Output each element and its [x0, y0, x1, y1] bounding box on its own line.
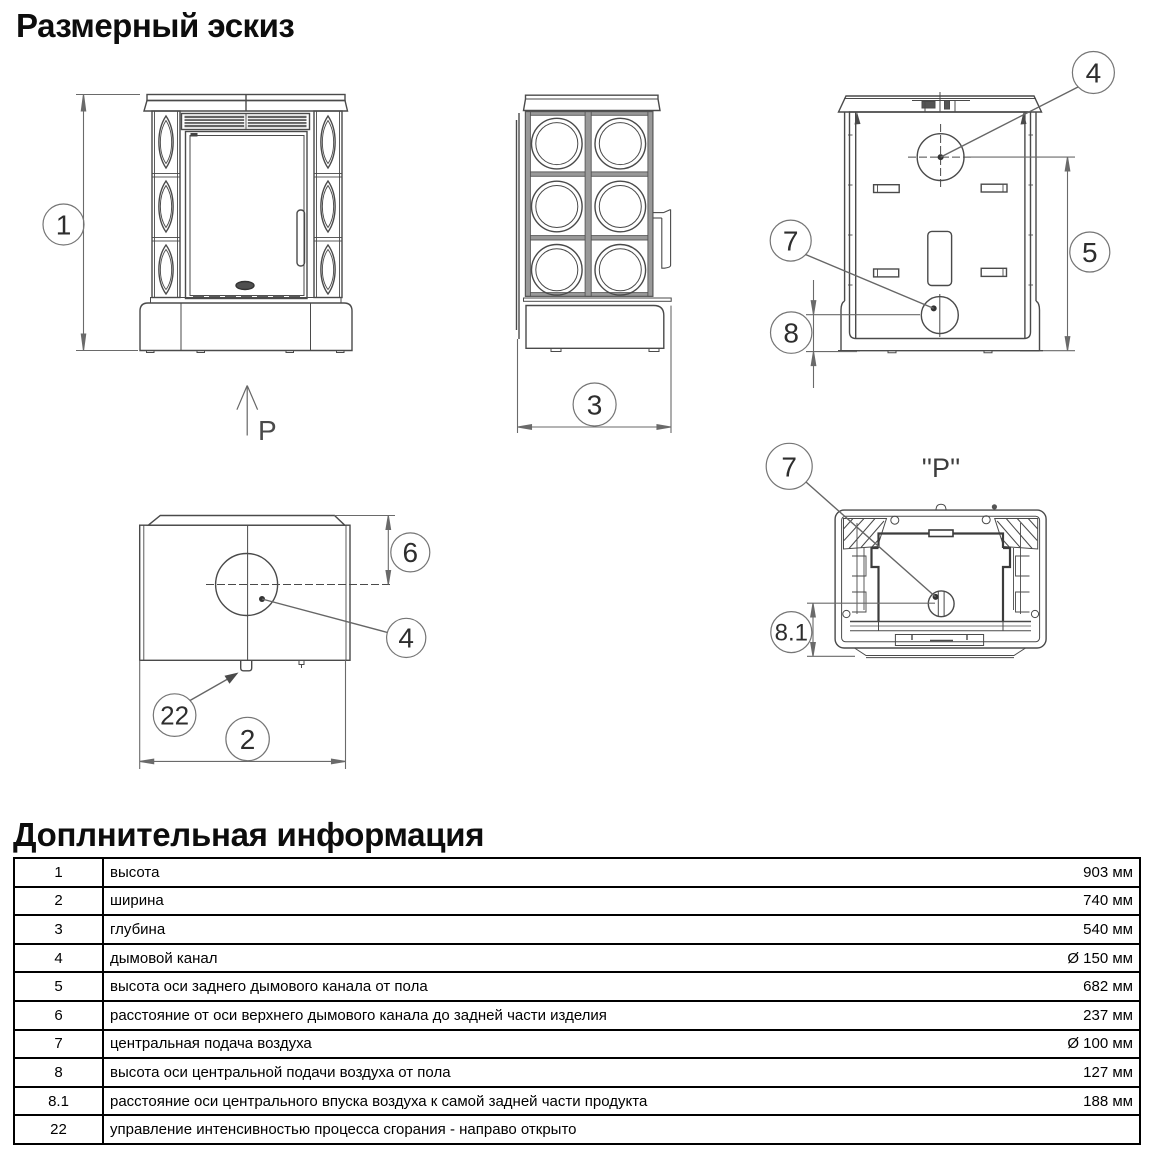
- svg-text:4: 4: [1086, 58, 1102, 89]
- svg-text:7: 7: [783, 226, 799, 257]
- svg-text:1: 1: [56, 210, 72, 241]
- svg-text:P: P: [258, 415, 277, 446]
- svg-text:6: 6: [403, 537, 419, 568]
- svg-text:''P'': ''P'': [922, 453, 961, 483]
- svg-text:22: 22: [160, 701, 189, 731]
- svg-text:8: 8: [783, 318, 799, 349]
- svg-text:5: 5: [1082, 237, 1098, 268]
- svg-text:2: 2: [240, 724, 256, 755]
- svg-text:7: 7: [781, 452, 797, 483]
- svg-text:3: 3: [587, 390, 603, 421]
- svg-text:8.1: 8.1: [775, 620, 808, 647]
- svg-text:4: 4: [398, 623, 414, 654]
